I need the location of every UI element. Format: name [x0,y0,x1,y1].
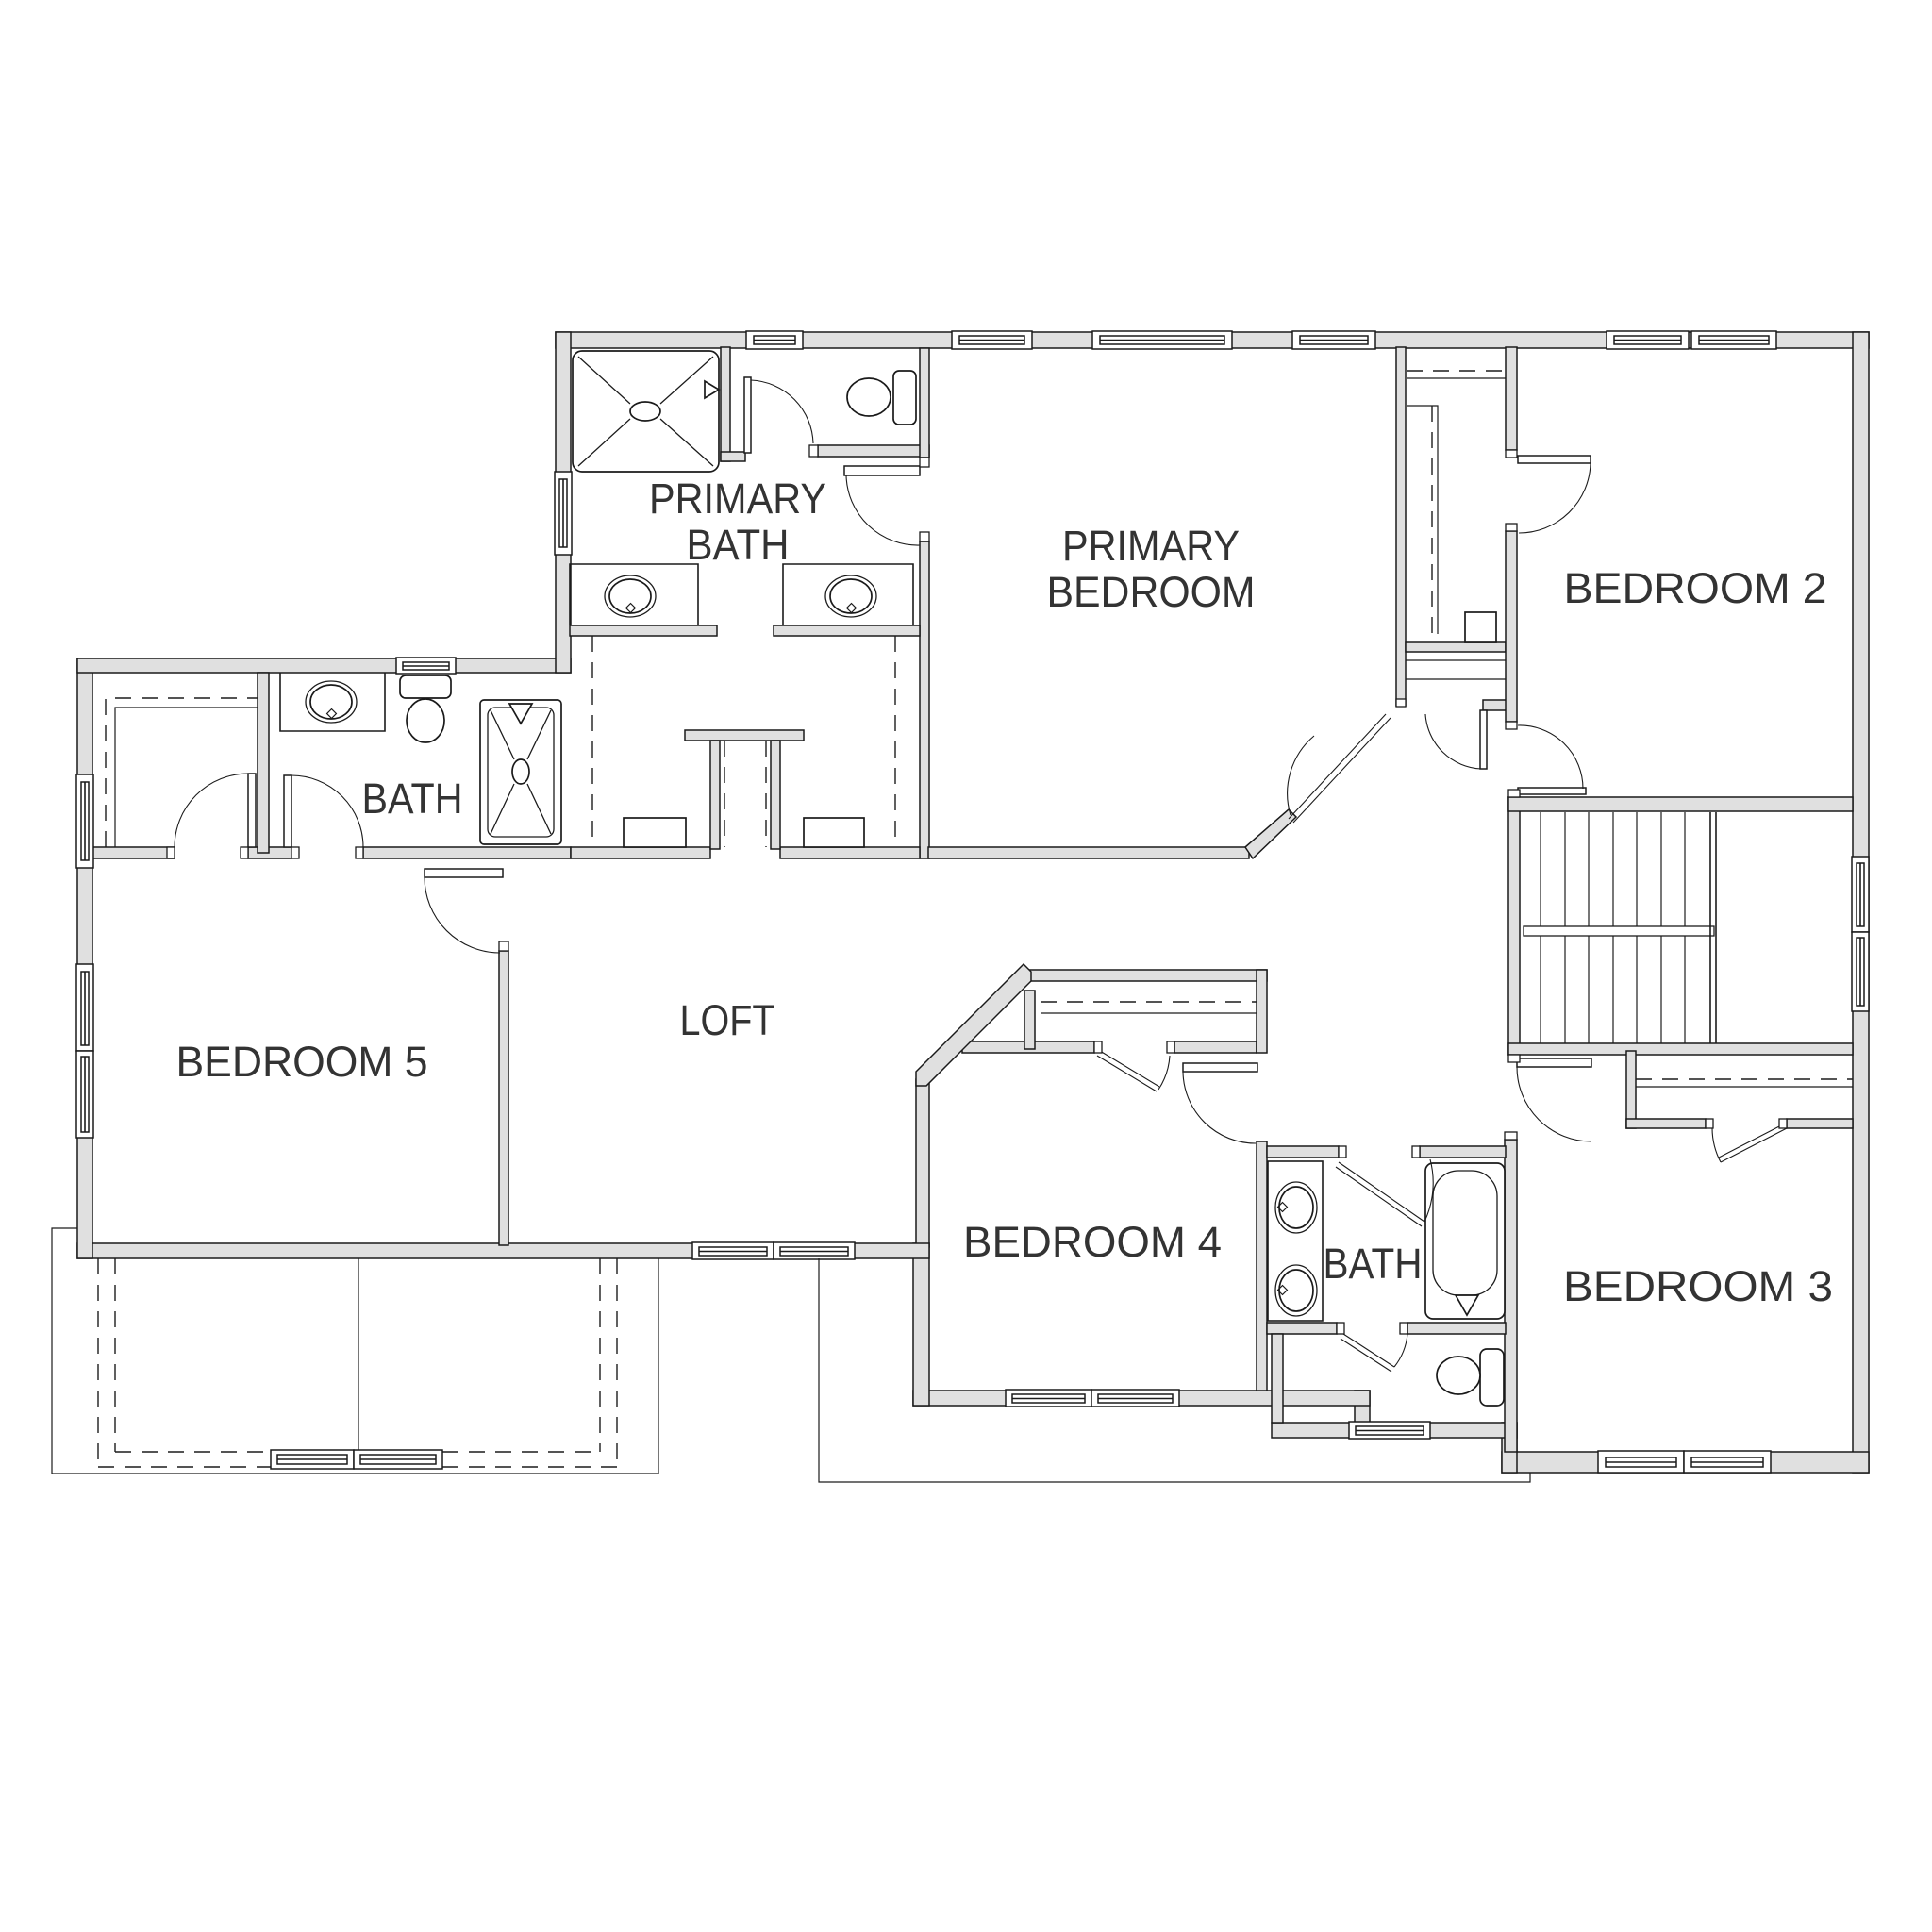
svg-text:LOFT: LOFT [680,996,775,1044]
svg-text:BEDROOM: BEDROOM [1047,568,1256,616]
svg-text:BATH: BATH [1324,1240,1423,1288]
svg-text:BEDROOM 4: BEDROOM 4 [963,1218,1222,1266]
svg-text:PRIMARY: PRIMARY [649,475,826,523]
svg-text:BATH: BATH [362,774,463,823]
svg-text:BATH: BATH [687,521,790,569]
svg-text:BEDROOM 5: BEDROOM 5 [176,1038,428,1086]
svg-text:PRIMARY: PRIMARY [1062,522,1240,570]
svg-text:BEDROOM 3: BEDROOM 3 [1563,1262,1833,1310]
svg-text:BEDROOM 2: BEDROOM 2 [1564,564,1827,612]
